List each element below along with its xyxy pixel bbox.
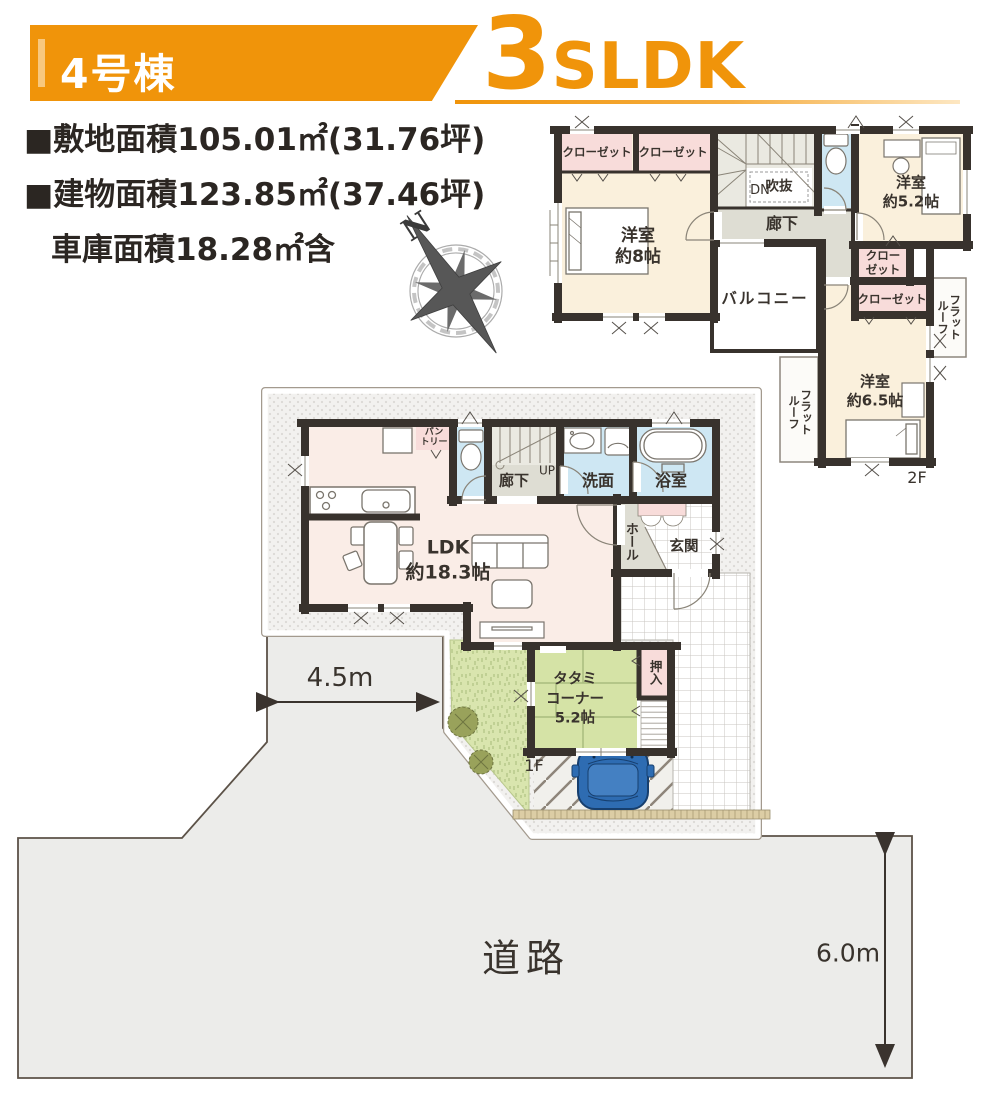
bed-icon — [846, 420, 920, 458]
hallway-2f-label: 廊下 — [766, 214, 798, 234]
room-label-closet-d: クローゼット — [858, 292, 927, 306]
site-area-line: ■敷地面積105.01㎡(31.76坪) — [24, 113, 485, 168]
balcony-label: バルコニー — [721, 289, 808, 308]
bedroom8-label: 洋室 約8帖 — [615, 226, 661, 269]
road-label: 道路 — [482, 935, 570, 983]
site-info: ■敷地面積105.01㎡(31.76坪) ■建物面積123.85㎡(37.46坪… — [24, 113, 485, 278]
plan-type: 3SLDK — [482, 8, 745, 113]
oshiire-label: 押入 — [648, 655, 661, 689]
bathroom-label: 浴室 — [655, 471, 687, 491]
toilet-icon — [459, 430, 483, 470]
shoe-cabinet — [638, 503, 686, 516]
floor1-label: 1F — [524, 756, 543, 776]
washbasin-icon — [564, 428, 631, 455]
banner-accent-bar — [38, 39, 45, 87]
hallway-1f-label: 廊下 — [499, 472, 529, 491]
plan-number: 3 — [482, 8, 552, 100]
car-icon — [572, 747, 654, 809]
flat-roof-right-label: フラットルーフ — [937, 289, 961, 345]
toilet-icon — [824, 134, 848, 174]
plan-type-underline — [455, 100, 960, 104]
tatami-label: タタミ コーナー 5.2帖 — [546, 671, 604, 730]
floorplan-sheet: 4号棟 3SLDK ■敷地面積105.01㎡(31.76坪) ■建物面積123.… — [0, 0, 1000, 1100]
hall-label: ホール — [623, 518, 637, 564]
step-louver — [641, 700, 669, 750]
stairs-1f-area — [488, 425, 560, 465]
desk-icon — [902, 383, 924, 417]
room-label-closet-b: クローゼット — [639, 145, 708, 159]
bedroom65-label: 洋室 約6.5帖 — [847, 372, 904, 410]
unit-banner: 4号棟 — [30, 25, 478, 101]
flat-roof-left-label: フラットルーフ — [788, 384, 812, 440]
unit-banner-label: 4号棟 — [60, 40, 177, 100]
frontage-dim-label: 4.5m — [307, 662, 374, 695]
room-label-closet-a: クローゼット — [563, 145, 632, 159]
washer-icon — [605, 428, 631, 455]
room-label-closet-c: クロー ゼット — [866, 249, 901, 278]
coffee-table-icon — [492, 580, 532, 608]
bedroom52-label: 洋室 約5.2帖 — [883, 173, 940, 211]
curb-strip — [513, 810, 770, 819]
ldk-label: LDK 約18.3帖 — [406, 535, 491, 584]
floor2-label: 2F — [907, 468, 926, 488]
void-label: 吹抜 — [766, 179, 793, 196]
entrance-label: 玄関 — [670, 538, 699, 556]
pantry-label: パン トリー — [420, 428, 447, 449]
stairs-up-label: UP — [539, 464, 555, 479]
washroom-label: 洗面 — [582, 471, 614, 491]
tv-board-icon — [480, 622, 544, 638]
road-width-dim-label: 6.0m — [816, 937, 880, 968]
fridge-icon — [383, 428, 412, 453]
